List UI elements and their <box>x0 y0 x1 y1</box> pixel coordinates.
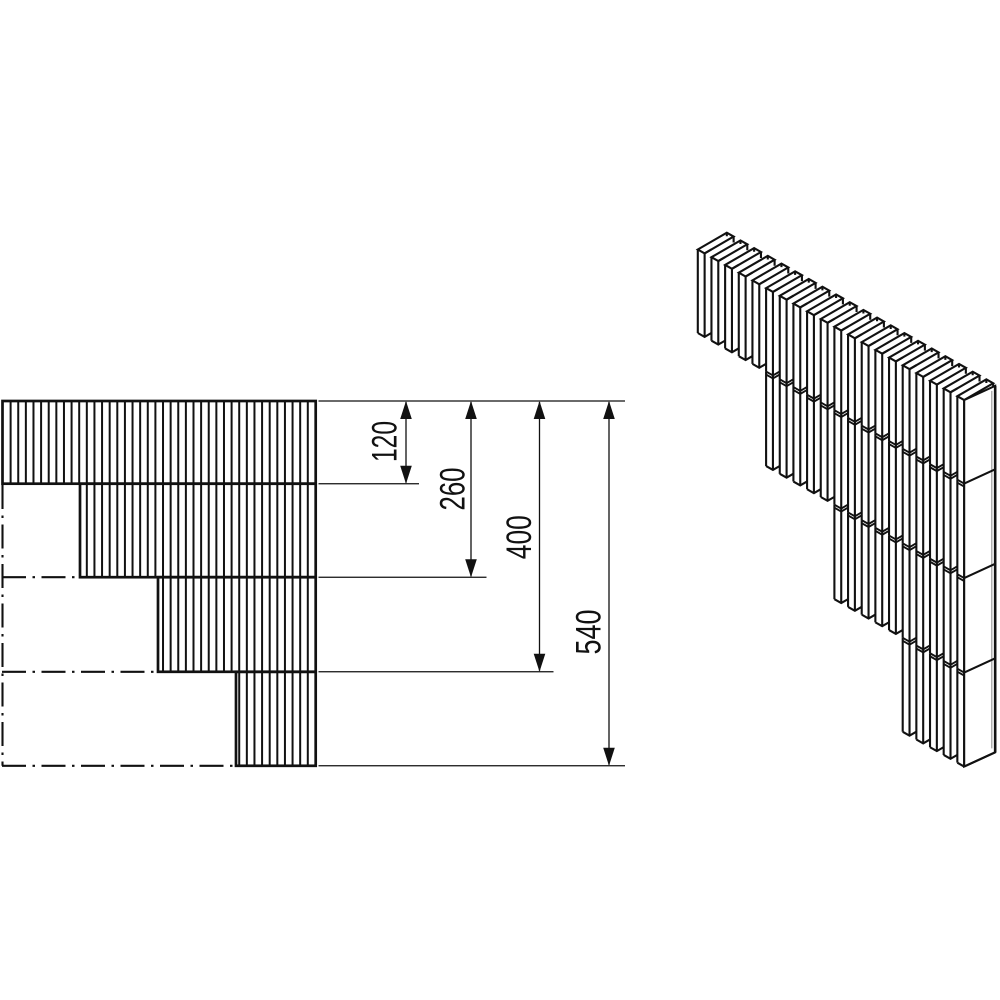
svg-text:260: 260 <box>434 468 473 511</box>
svg-text:120: 120 <box>366 421 405 462</box>
svg-text:540: 540 <box>570 610 609 655</box>
svg-text:400: 400 <box>500 515 539 559</box>
